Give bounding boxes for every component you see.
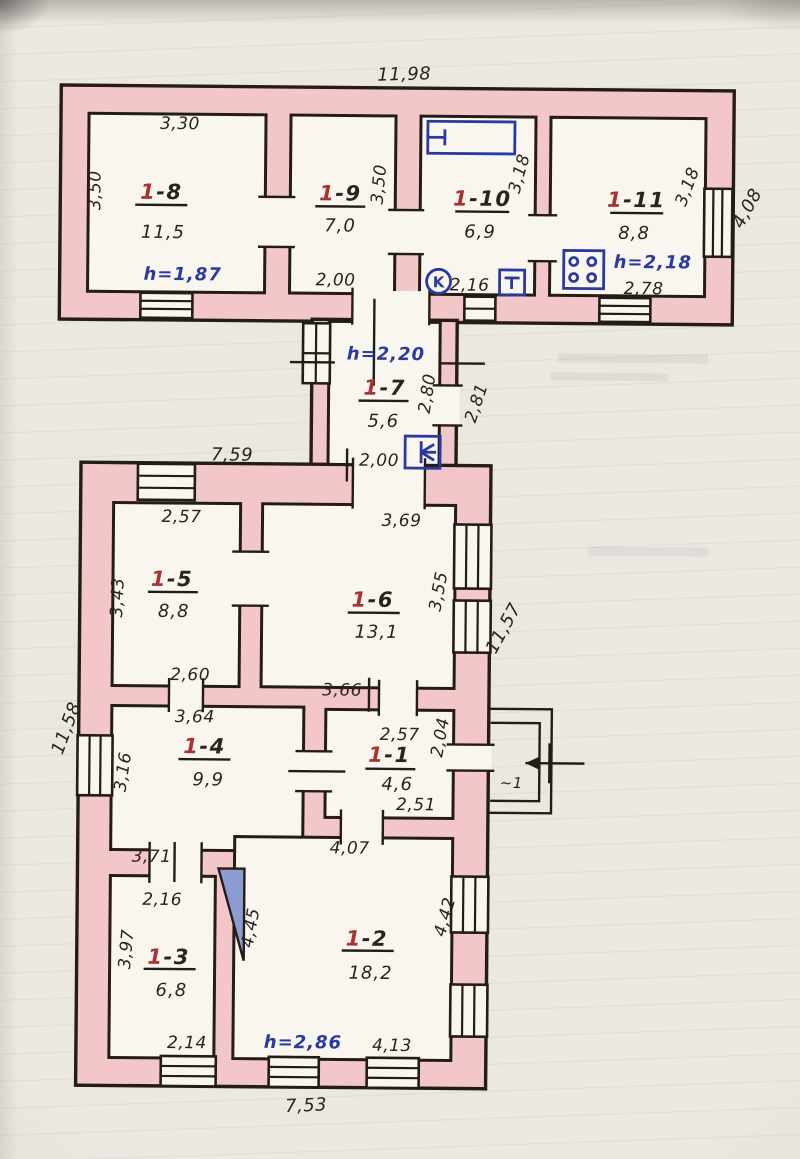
room-1-9-area: 7,0 [324,215,356,236]
paper-background: K [0,0,800,1159]
floor-plan-drawing: K [0,0,800,1159]
overall-bottom-width: 7,53 [285,1094,328,1117]
room-1-6-area: 13,1 [354,622,398,643]
dim-1-5-left: 3,43 [107,577,129,618]
dim-1-10-bottom: 2,16 [450,275,490,295]
entrance-arrow-head [525,756,540,770]
room-1-7-height: h=2,20 [347,344,425,366]
dim-1-3-left: 3,97 [115,928,139,970]
room-1-2-floor [233,837,453,1061]
room-1-3-area: 6,8 [155,980,187,1001]
room-1-10-area: 6,9 [464,222,496,243]
dim-1-11-bottom: 2,78 [624,279,664,299]
room-1-5-label: 1-5 [151,567,194,591]
dim-1-7-bottom: 2,00 [359,451,399,471]
dim-1-1-bottom: 2,51 [396,795,436,815]
room-1-9-label: 1-9 [319,181,362,205]
dim-1-2-top: 4,07 [330,838,370,858]
drawing-tilt-wrapper: K [0,0,800,1159]
room-1-5-area: 8,8 [158,601,190,622]
dim-1-9-right: 3,50 [368,164,392,206]
dim-1-4-bottom: 3,71 [132,847,172,867]
overall-top-width: 11,98 [377,63,432,85]
room-1-8-height: h=1,87 [143,264,221,286]
room-1-4-label: 1-4 [183,734,226,758]
room-1-8-area: 11,5 [141,222,185,243]
room-1-6-label: 1-6 [351,588,394,612]
dim-1-4-top: 3,64 [175,707,215,727]
room-1-2-label: 1-2 [346,927,389,951]
dim-1-8-left: 3,50 [85,170,105,210]
porch-label: ~1 [500,774,523,792]
dim-1-3-top: 2,16 [142,890,182,910]
room-1-11-area: 8,8 [618,223,650,244]
room-1-2-height: h=2,86 [264,1032,342,1054]
dim-1-6-top: 3,69 [381,511,421,531]
dim-1-5-bottom: 2,60 [170,665,210,685]
dim-1-7-outer: 2,81 [461,381,493,425]
room-1-2-area: 18,2 [348,963,392,984]
room-1-8-label: 1-8 [140,180,183,204]
room-1-10-label: 1-10 [453,186,512,211]
room-1-1-area: 4,6 [381,774,413,795]
room-1-1-label: 1-1 [368,743,411,767]
dim-1-6-bottom: 3,66 [322,680,362,700]
room-1-7-area: 5,6 [367,411,399,432]
dim-1-5-top: 2,57 [162,507,202,527]
porch [488,709,585,814]
room-1-4-area: 9,9 [192,769,224,790]
room-1-11-label: 1-11 [607,188,666,213]
room-1-3-label: 1-3 [147,945,190,969]
bottom-block-top-width: 7,59 [211,444,253,465]
room-1-11-height: h=2,18 [614,252,692,274]
dim-1-2-bottom: 4,13 [372,1036,412,1056]
dim-1-3-bottom: 2,14 [167,1033,207,1053]
room-1-7-label: 1-7 [363,376,406,400]
room-1-5-floor [112,502,241,686]
dim-1-8-top: 3,30 [160,114,200,134]
k-letter: K [433,273,446,291]
dim-1-9-bottom: 2,00 [316,270,356,290]
